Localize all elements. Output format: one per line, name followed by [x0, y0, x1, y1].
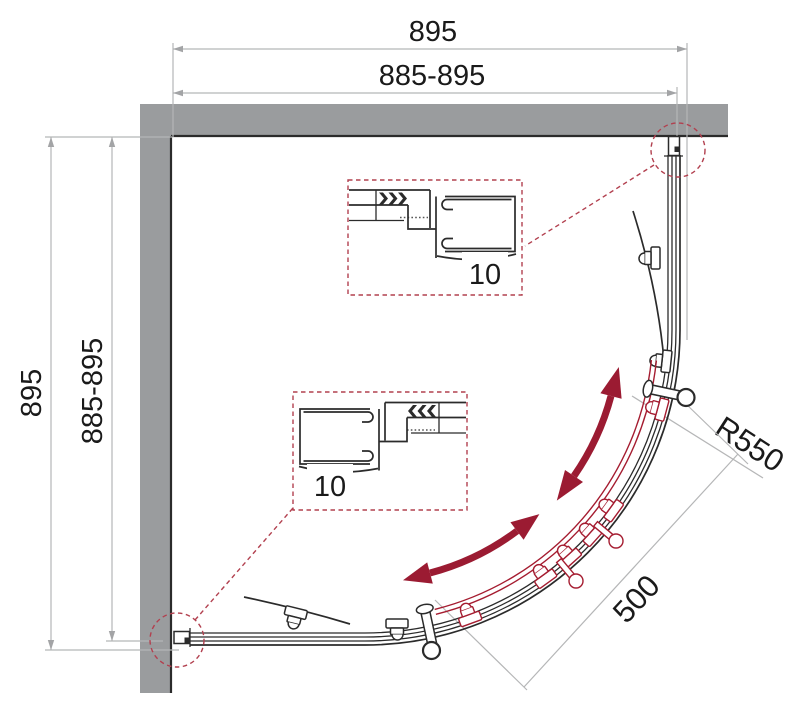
door-knob-lower-red: [569, 574, 583, 588]
detail-leader-top: [525, 165, 654, 246]
left-wall: [140, 104, 172, 693]
detail-leader-bottom: [195, 508, 293, 620]
handle-knob-lower: [423, 642, 440, 659]
door-panel-upper-open: [633, 211, 672, 373]
top-wall: [140, 104, 728, 137]
track-bracket-bottom: [386, 619, 408, 640]
dim-left-overall-label: 895: [16, 369, 48, 417]
technical-drawing-page: 895 885-895 895 885-895: [0, 0, 800, 713]
dim-top-adjustable-label: 885-895: [379, 60, 485, 92]
opening-extension-lower: [435, 600, 527, 690]
handle-knob-upper: [678, 389, 695, 406]
swing-arrow-upper: [557, 367, 622, 501]
detail-bottom-label: 10: [314, 471, 346, 503]
detail-drawing-bottom: 10: [299, 403, 466, 504]
dim-left-adjustable-label: 885-895: [77, 338, 109, 444]
door-knob-upper-red: [609, 534, 623, 548]
wall-profile-bottom-left: [174, 628, 190, 647]
door-handle-lower: [415, 603, 442, 659]
radius-label: R550: [709, 409, 790, 479]
door-stopper-bracket-upper: [639, 247, 660, 269]
dim-top-overall-label: 895: [409, 16, 457, 48]
door-edge-bracket-upper: [649, 349, 672, 373]
wall-profile-top-right: [664, 137, 683, 157]
detail-callout-bottom: 10: [150, 392, 467, 667]
door-stopper-bracket-lower: [281, 606, 307, 632]
detail-top-label: 10: [469, 259, 501, 291]
opening-label: 500: [606, 568, 667, 630]
shower-enclosure-plan-svg: 895 885-895 895 885-895: [0, 0, 800, 713]
detail-drawing-top: 10: [349, 190, 516, 291]
